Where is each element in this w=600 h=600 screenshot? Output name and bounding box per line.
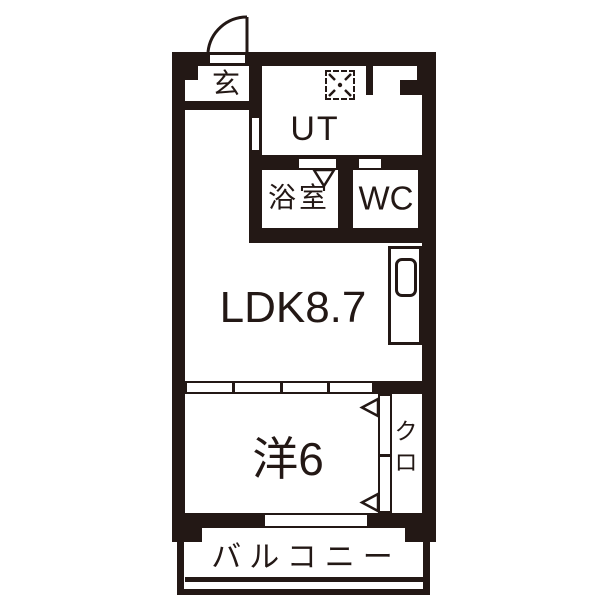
western-room-label: 洋6 xyxy=(252,436,324,482)
wall-entry-step xyxy=(172,52,198,80)
kitchen-sink-icon xyxy=(395,258,417,297)
wall-sanitary-bottom xyxy=(249,228,436,243)
entrance-door-frame xyxy=(207,52,248,66)
balcony-rail-bottom xyxy=(177,589,430,595)
partition-divider xyxy=(232,383,235,392)
bath-label: 浴室 xyxy=(268,184,330,212)
wall-notch-right xyxy=(417,64,422,95)
partition-divider xyxy=(327,383,330,392)
balcony-rail-left xyxy=(177,542,184,595)
closet-label-char2: ロ xyxy=(395,447,418,478)
closet-door xyxy=(378,394,392,513)
closet-label-char1: ク xyxy=(395,416,418,447)
hall-door-leaf xyxy=(250,116,261,152)
partition-divider xyxy=(280,383,283,392)
floorplan: 玄 UT 浴室 WC LDK8.7 洋6 ク ロ バルコニー xyxy=(0,0,600,600)
wall-notch-step xyxy=(400,80,417,95)
window-slot xyxy=(265,515,367,526)
genkan-label: 玄 xyxy=(212,70,240,98)
toilet-label: WC xyxy=(359,182,414,215)
balcony-stub-left xyxy=(172,528,202,542)
wall-notch-left xyxy=(366,64,373,95)
closet-fold-top-icon xyxy=(362,399,378,416)
wall-sanitary-top xyxy=(262,155,436,170)
ldk-label: LDK8.7 xyxy=(220,286,367,330)
wall-genkan-bottom xyxy=(185,101,262,110)
closet-fold-bottom-icon xyxy=(362,494,378,511)
wall-left xyxy=(172,52,185,528)
sliding-partition xyxy=(185,381,374,394)
balcony-label: バルコニー xyxy=(211,543,400,573)
wall-wc-right xyxy=(418,170,422,228)
balcony-rail-inner xyxy=(185,577,423,582)
entrance-door-arc-icon xyxy=(208,17,247,52)
wall-right xyxy=(422,52,436,528)
washer-space-icon xyxy=(325,70,355,100)
balcony-rail-right xyxy=(423,542,430,595)
bath-door-leaf xyxy=(297,157,338,170)
closet-door-split xyxy=(380,454,390,457)
wc-door-leaf xyxy=(357,157,383,170)
wall-bath-wc-divider xyxy=(338,170,353,228)
balcony-stub-right xyxy=(405,528,436,542)
utility-label: UT xyxy=(290,112,339,146)
closet-label: ク ロ xyxy=(395,416,418,478)
wall-closet-top xyxy=(374,381,436,394)
